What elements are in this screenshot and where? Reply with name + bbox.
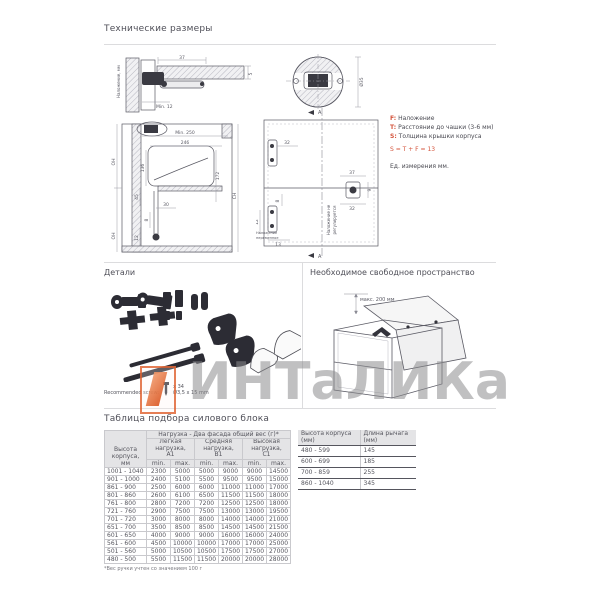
load-value: 9500 <box>243 475 267 483</box>
load-value: 5000 <box>171 467 195 475</box>
section-a-top: A <box>318 110 322 116</box>
load-value: 14500 <box>243 523 267 531</box>
arm-length: 145 <box>360 446 416 457</box>
max-label: max. <box>171 459 195 467</box>
dim-30: 30 <box>163 202 169 208</box>
table-row: 701 - 720300080008000140001400021000 <box>105 515 291 523</box>
load-value: 9000 <box>243 467 267 475</box>
max-label: max. <box>267 459 291 467</box>
min-label: min. <box>195 459 219 467</box>
screw-size: Ø3,5 x 15 mm <box>173 390 209 396</box>
load-value: 24000 <box>267 531 291 539</box>
table-row: 480 - 599145 <box>298 446 416 457</box>
legend-formula: S = T + F = 13 <box>390 145 500 154</box>
load-value: 9500 <box>219 475 243 483</box>
load-value: 9000 <box>219 467 243 475</box>
cover-cap-icon <box>274 329 301 361</box>
load-value: 13000 <box>219 507 243 515</box>
section-title-parts: Детали <box>104 268 135 277</box>
load-value: 10000 <box>195 539 219 547</box>
spacer-icon <box>191 294 198 310</box>
load-value: 14500 <box>219 523 243 531</box>
arm-col1-header: Высота корпуса (мм) <box>298 430 360 446</box>
load-value: 8500 <box>195 523 219 531</box>
load-value: 3000 <box>147 515 171 523</box>
load-value: 6100 <box>171 491 195 499</box>
height-range: 600 - 699 <box>298 457 360 468</box>
height-range: 860 - 1040 <box>298 479 360 490</box>
dim-13: 13 <box>275 242 281 248</box>
load-header: Нагрузка - Два фасада общий вес (г)* <box>147 431 291 439</box>
load-value: 7200 <box>195 499 219 507</box>
table-row: 721 - 760290075007500130001300019500 <box>105 507 291 515</box>
adapter-icon <box>175 290 183 307</box>
load-value: 17000 <box>267 483 291 491</box>
section-title-space: Необходимое свободное пространство <box>310 268 475 277</box>
drawing-front-view: A A 32 37 32 9 8 12 13 Наложение не регу… <box>256 106 390 260</box>
load-value: 4500 <box>147 539 171 547</box>
table-row: 561 - 60045001000010000170001700025000 <box>105 539 291 547</box>
divider-vertical <box>302 262 303 408</box>
load-value: 7500 <box>195 507 219 515</box>
load-value: 5000 <box>195 467 219 475</box>
adapter-icon <box>163 292 171 307</box>
screw-note: Recommended screw: x 34 Ø3,5 x 15 mm <box>104 382 209 396</box>
load-value: 16000 <box>243 531 267 539</box>
label-small-1: Наложение <box>256 231 277 235</box>
load-value: 10000 <box>171 539 195 547</box>
arm-length: 185 <box>360 457 416 468</box>
load-value: 20000 <box>219 555 243 563</box>
height-range: 1001 - 1040 <box>105 467 147 475</box>
dim-min250: Min. 250 <box>175 130 195 136</box>
dim-8: 8 <box>144 218 150 221</box>
load-value: 25000 <box>267 539 291 547</box>
label-overlay-1: Наложение не <box>326 204 331 235</box>
load-value: 5000 <box>147 547 171 555</box>
group-c1: Высокая нагрузка, C1 <box>243 439 291 460</box>
load-value: 7500 <box>171 507 195 515</box>
load-value: 16000 <box>219 531 243 539</box>
table-row: 860 - 1040345 <box>298 479 416 490</box>
height-range: 801 - 860 <box>105 491 147 499</box>
dim-172: 172 <box>215 172 221 181</box>
height-range: 721 - 760 <box>105 507 147 515</box>
section-title-selection: Таблица подбора силового блока <box>104 414 269 424</box>
load-value: 8500 <box>171 523 195 531</box>
section-title-tech: Технические размеры <box>104 24 213 34</box>
load-value: 28000 <box>267 555 291 563</box>
arm-length-table: Высота корпуса (мм) Длина рычага (мм) 48… <box>298 430 416 490</box>
min-label: min. <box>243 459 267 467</box>
load-value: 12500 <box>219 499 243 507</box>
load-value: 14000 <box>219 515 243 523</box>
load-value: 11000 <box>219 483 243 491</box>
load-value: 5500 <box>195 475 219 483</box>
load-value: 10500 <box>171 547 195 555</box>
table-row: 861 - 900250060006000110001100017000 <box>105 483 291 491</box>
height-range: 480 - 500 <box>105 555 147 563</box>
dim-min12: Min. 12 <box>156 104 173 110</box>
height-range: 861 - 900 <box>105 483 147 491</box>
load-value: 12500 <box>243 499 267 507</box>
telescopic-arm-icon <box>128 342 200 370</box>
max-label: max. <box>219 459 243 467</box>
load-value: 17000 <box>219 539 243 547</box>
parts-diagram <box>105 286 301 382</box>
legend: F: Наложение T: Расстояние до чашки (3-6… <box>390 114 500 171</box>
height-range: 601 - 650 <box>105 531 147 539</box>
dim-246: 246 <box>181 140 190 146</box>
table-row: 801 - 860260061006500115001150018000 <box>105 491 291 499</box>
free-space-diagram: макс. 200 мм <box>308 286 498 402</box>
dim-free-space: макс. 200 мм <box>360 297 395 303</box>
legend-text-t: Расстояние до чашки (3-6 мм) <box>398 124 493 131</box>
legend-key-f: F: <box>390 115 396 122</box>
row-header: Высота корпуса, мм <box>105 431 147 468</box>
load-value: 6000 <box>171 483 195 491</box>
load-value: 7200 <box>171 499 195 507</box>
table-row: 601 - 650400090009000160001600024000 <box>105 531 291 539</box>
height-range: 700 - 859 <box>298 468 360 479</box>
drawing-cabinet-side-section: Min. 250 246 136 172 45 30 8 12 OH OH CH <box>110 116 246 262</box>
legend-line-t: T: Расстояние до чашки (3-6 мм) <box>390 123 500 132</box>
table-row: 700 - 859255 <box>298 468 416 479</box>
load-value: 17000 <box>243 539 267 547</box>
height-range: 480 - 599 <box>298 446 360 457</box>
height-range: 561 - 600 <box>105 539 147 547</box>
divider <box>104 44 496 45</box>
load-value: 11000 <box>243 483 267 491</box>
table-footnote: *Вес ручки учтен со значением 100 г <box>104 566 202 572</box>
dim-12: 12 <box>256 219 260 225</box>
arm-length: 255 <box>360 468 416 479</box>
spacer-icon <box>201 292 208 310</box>
load-value: 2400 <box>147 475 171 483</box>
load-value: 13000 <box>243 507 267 515</box>
label-oh-bottom: OH <box>111 233 117 240</box>
legend-text-f: Наложение <box>398 115 434 122</box>
load-value: 18000 <box>267 499 291 507</box>
group-a1: Легкая нагрузка, A1 <box>147 439 195 460</box>
section-a-bottom: A <box>318 254 322 260</box>
load-value: 19500 <box>267 507 291 515</box>
load-value: 11500 <box>195 555 219 563</box>
table-row: 761 - 800280072007200125001250018000 <box>105 499 291 507</box>
table-header-row: Высота корпуса (мм) Длина рычага (мм) <box>298 430 416 446</box>
divider <box>104 408 496 409</box>
load-value: 15000 <box>267 475 291 483</box>
load-value: 11500 <box>219 491 243 499</box>
load-value: 2500 <box>147 483 171 491</box>
dim-12: 12 <box>134 235 140 241</box>
height-range: 651 - 700 <box>105 523 147 531</box>
min-label: min. <box>147 459 171 467</box>
load-value: 4000 <box>147 531 171 539</box>
dim-37: 37 <box>179 55 185 61</box>
load-value: 5100 <box>171 475 195 483</box>
legend-units: Ед. измерения мм. <box>390 162 500 171</box>
load-value: 21000 <box>267 515 291 523</box>
load-value: 9000 <box>171 531 195 539</box>
load-value: 9000 <box>195 531 219 539</box>
table-row: 1001 - 10402300500050009000900014500 <box>105 467 291 475</box>
table-row: 600 - 699185 <box>298 457 416 468</box>
table-row: 480 - 50055001150011500200002000028000 <box>105 555 291 563</box>
group-b1: Средняя нагрузка, B1 <box>195 439 243 460</box>
label-oh-top: OH <box>111 159 117 166</box>
height-range: 501 - 560 <box>105 547 147 555</box>
table-row: 651 - 700350085008500145001450021500 <box>105 523 291 531</box>
arm-col2-header: Длина рычага (мм) <box>360 430 416 446</box>
load-value: 11500 <box>171 555 195 563</box>
drawing-top-cross-section: 37 5 Min. 12 Наложение, мм <box>112 54 254 116</box>
screw-note-prefix: Recommended screw: <box>104 390 159 396</box>
label-ch: CH <box>232 193 238 200</box>
load-value: 14000 <box>243 515 267 523</box>
legend-key-t: T: <box>390 124 396 131</box>
load-value: 6500 <box>195 491 219 499</box>
height-range: 701 - 720 <box>105 515 147 523</box>
label-overlay-mm: Наложение, мм <box>116 65 121 98</box>
mounting-plate-icon <box>149 305 176 327</box>
load-value: 2300 <box>147 467 171 475</box>
dim-5: 5 <box>248 72 254 75</box>
legend-line-s: S: Толщина крышки корпуса <box>390 132 500 141</box>
legend-key-s: S: <box>390 133 397 140</box>
table-row: 501 - 56050001050010500175001750027000 <box>105 547 291 555</box>
dim-45: 45 <box>134 194 140 200</box>
load-value: 27000 <box>267 547 291 555</box>
dim-8: 8 <box>275 199 281 202</box>
height-range: 901 - 1000 <box>105 475 147 483</box>
load-value: 2800 <box>147 499 171 507</box>
load-value: 11500 <box>243 491 267 499</box>
load-value: 17500 <box>219 547 243 555</box>
load-value: 5500 <box>147 555 171 563</box>
table-row: 901 - 10002400510055009500950015000 <box>105 475 291 483</box>
load-value: 3500 <box>147 523 171 531</box>
height-range: 761 - 800 <box>105 499 147 507</box>
mounting-plate-icon <box>119 309 146 331</box>
load-value: 8000 <box>195 515 219 523</box>
dim-32-bottom: 32 <box>349 206 355 212</box>
legend-line-f: F: Наложение <box>390 114 500 123</box>
load-value: 10500 <box>195 547 219 555</box>
load-value: 6000 <box>195 483 219 491</box>
load-value: 2600 <box>147 491 171 499</box>
dim-37: 37 <box>349 170 355 176</box>
drawing-cup-detail: Ø35 <box>282 52 374 114</box>
dim-d35: Ø35 <box>358 77 365 86</box>
table-header-row: Высота корпуса, мм Нагрузка - Два фасада… <box>105 431 291 439</box>
load-value: 2900 <box>147 507 171 515</box>
dim-9: 9 <box>367 188 373 191</box>
load-value: 8000 <box>171 515 195 523</box>
dim-136: 136 <box>140 164 146 173</box>
load-value: 20000 <box>243 555 267 563</box>
legend-text-s: Толщина крышки корпуса <box>399 133 482 140</box>
label-small-2: переменное <box>256 236 278 240</box>
dim-32-top: 32 <box>284 140 290 146</box>
load-selection-table: Высота корпуса, мм Нагрузка - Два фасада… <box>104 430 291 564</box>
load-value: 14500 <box>267 467 291 475</box>
load-value: 17500 <box>243 547 267 555</box>
screw-icon <box>162 382 170 396</box>
arm-length: 345 <box>360 479 416 490</box>
label-overlay-2: регулируется <box>332 205 337 235</box>
load-value: 21500 <box>267 523 291 531</box>
divider <box>104 262 496 263</box>
load-value: 18000 <box>267 491 291 499</box>
